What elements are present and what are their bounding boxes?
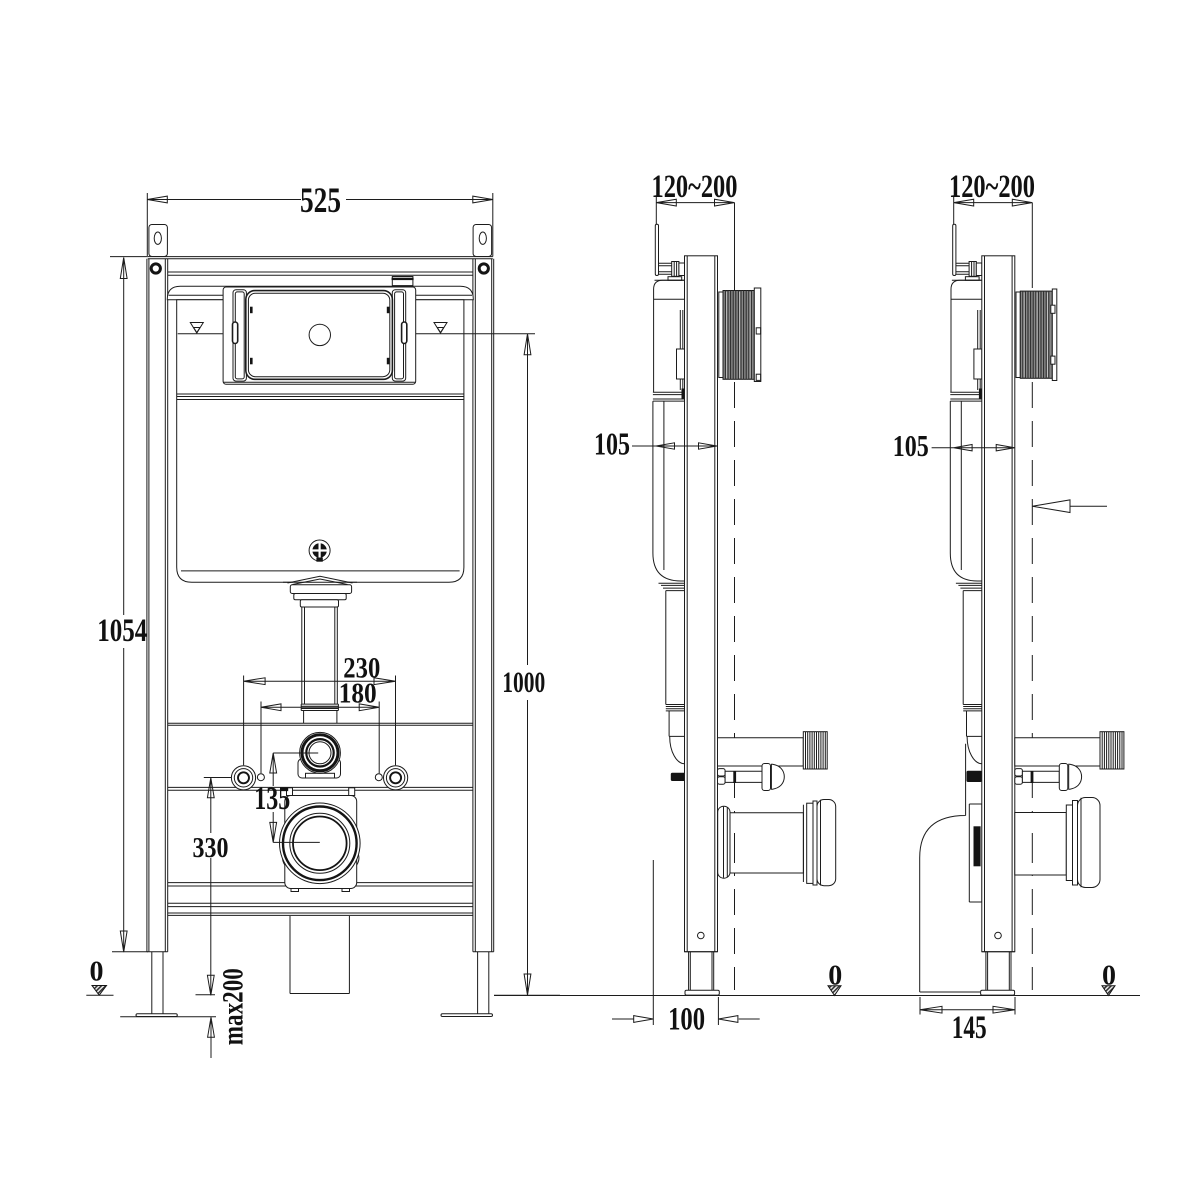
svg-text:1054: 1054	[97, 613, 147, 649]
svg-text:180: 180	[339, 678, 377, 710]
svg-text:120~200: 120~200	[949, 169, 1035, 205]
svg-text:1000: 1000	[502, 666, 545, 699]
svg-text:145: 145	[952, 1010, 987, 1046]
svg-text:105: 105	[893, 428, 929, 463]
svg-text:525: 525	[300, 180, 341, 220]
svg-text:120~200: 120~200	[652, 169, 738, 205]
svg-text:0: 0	[90, 957, 104, 988]
svg-text:135: 135	[254, 781, 290, 817]
svg-text:max200: max200	[216, 968, 249, 1045]
svg-text:330: 330	[193, 833, 229, 864]
svg-text:100: 100	[668, 1002, 705, 1038]
svg-text:105: 105	[594, 426, 630, 462]
